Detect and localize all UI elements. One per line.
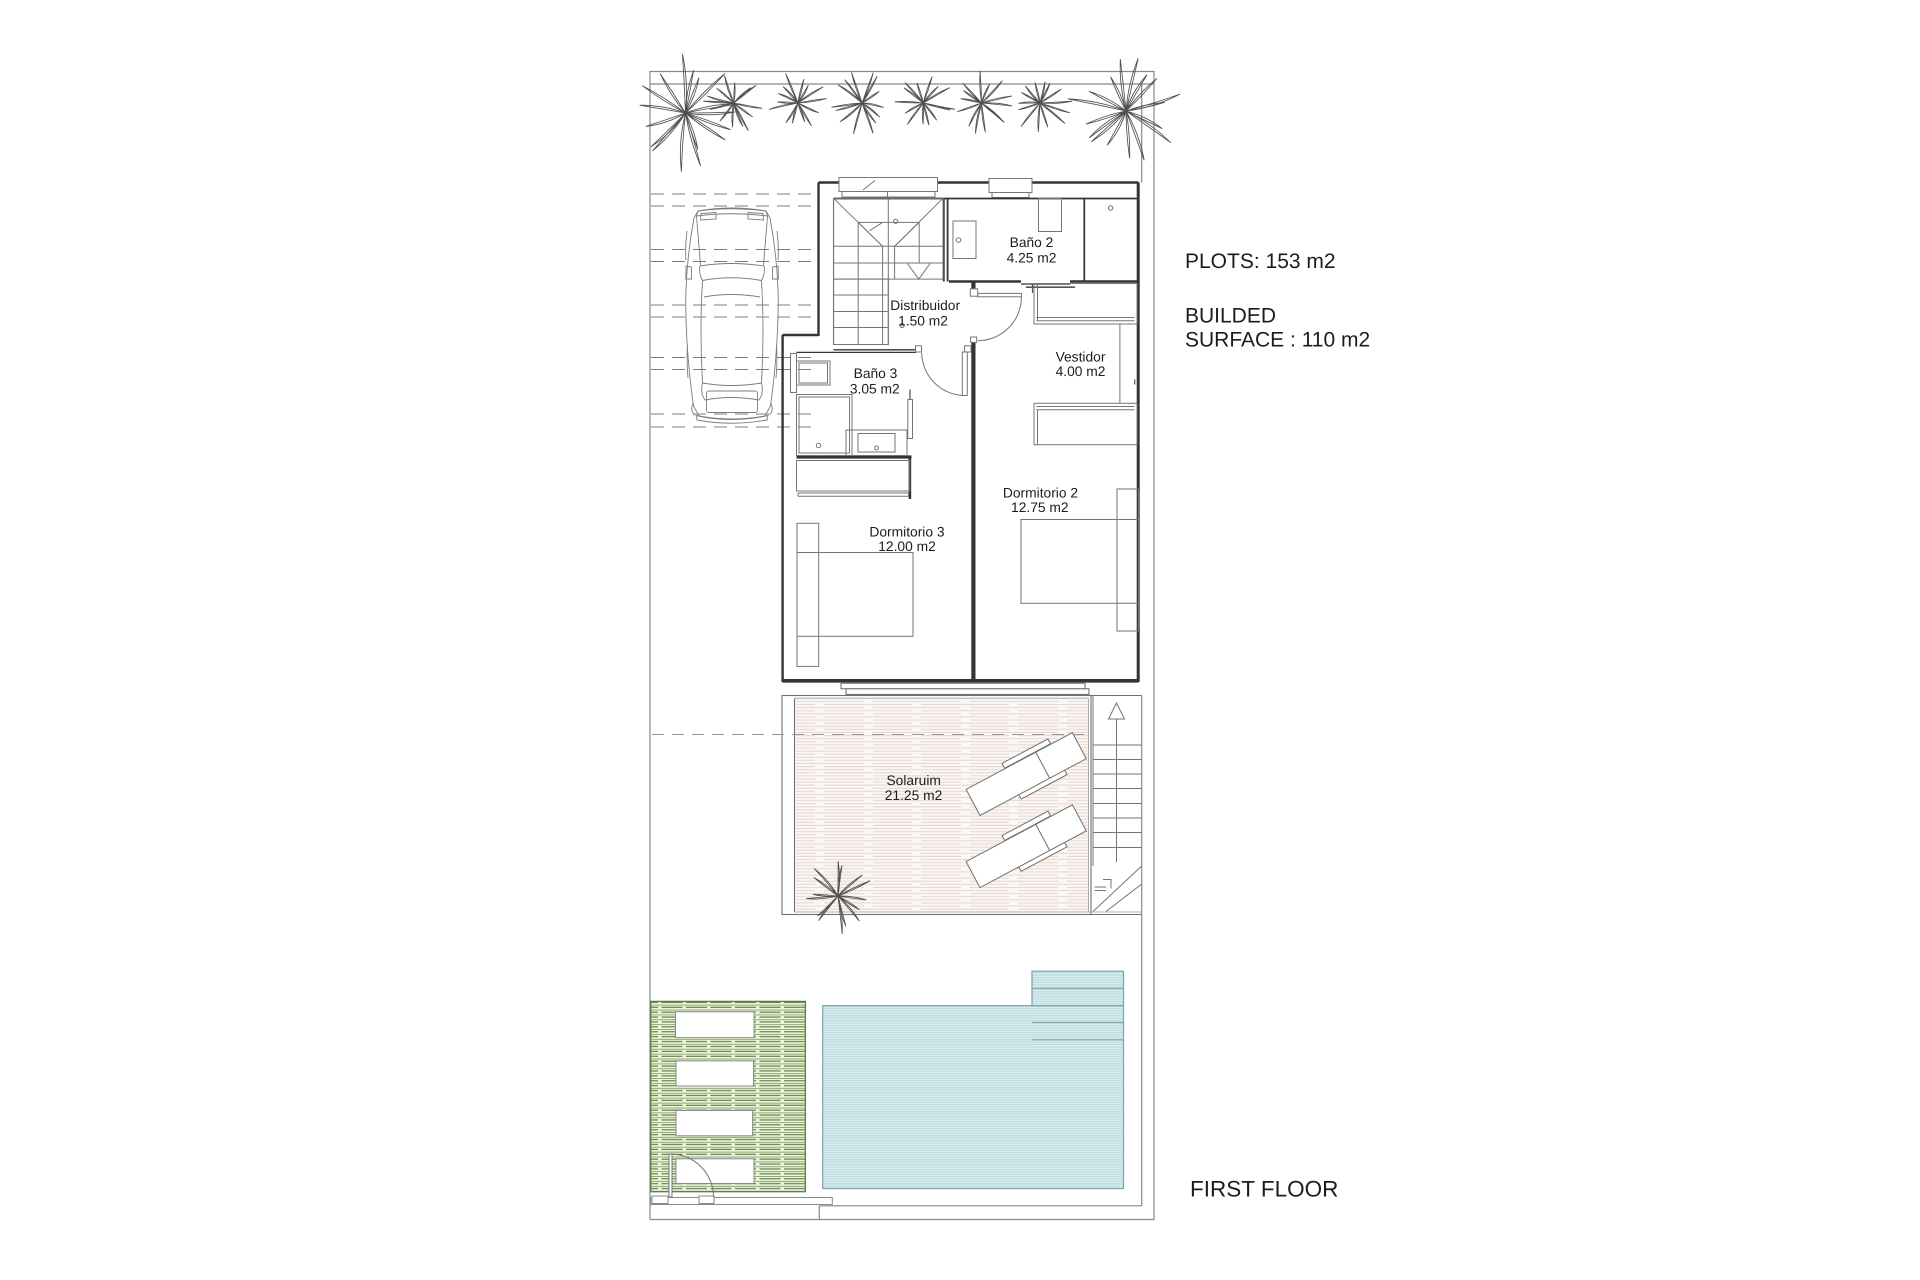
- svg-text:1.50 m2: 1.50 m2: [898, 314, 948, 329]
- svg-text:21.25 m2: 21.25 m2: [885, 788, 943, 803]
- svg-text:Solaruim: Solaruim: [886, 773, 940, 788]
- svg-text:PLOTS: 153 m2: PLOTS: 153 m2: [1185, 250, 1336, 273]
- svg-text:SURFACE : 110 m2: SURFACE : 110 m2: [1185, 329, 1370, 352]
- svg-text:Distribuidor: Distribuidor: [890, 298, 960, 313]
- svg-text:Baño 2: Baño 2: [1010, 235, 1054, 250]
- svg-text:Dormitorio 2: Dormitorio 2: [1003, 486, 1078, 501]
- svg-text:3.05 m2: 3.05 m2: [850, 382, 900, 397]
- svg-text:12.00 m2: 12.00 m2: [878, 539, 936, 554]
- svg-text:4.25 m2: 4.25 m2: [1007, 251, 1057, 266]
- svg-text:Baño 3: Baño 3: [854, 366, 898, 381]
- svg-text:Vestidor: Vestidor: [1056, 350, 1106, 365]
- svg-text:Dormitorio 3: Dormitorio 3: [869, 525, 944, 540]
- svg-text:BUILDED: BUILDED: [1185, 305, 1276, 328]
- svg-text:4.00 m2: 4.00 m2: [1056, 364, 1106, 379]
- svg-text:FIRST FLOOR: FIRST FLOOR: [1190, 1177, 1338, 1202]
- svg-text:12.75 m2: 12.75 m2: [1011, 500, 1069, 515]
